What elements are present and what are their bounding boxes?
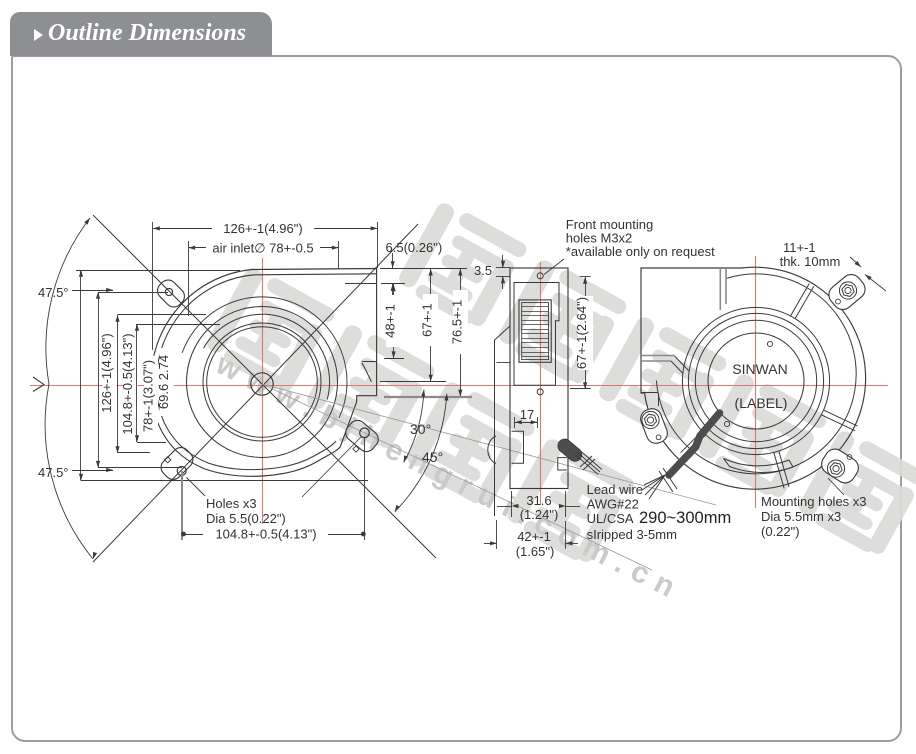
svg-text:(1.24"): (1.24")	[520, 507, 559, 522]
svg-text:AWG#22: AWG#22	[587, 497, 639, 512]
svg-text:Lead wire: Lead wire	[587, 482, 643, 497]
svg-text:104.8+-0.5(4.13"): 104.8+-0.5(4.13")	[120, 333, 135, 434]
svg-text:78+-1(3.07"): 78+-1(3.07")	[141, 360, 156, 432]
svg-text:Mounting holes x3: Mounting holes x3	[761, 494, 867, 509]
svg-text:UL/CSA: UL/CSA	[587, 511, 634, 526]
svg-text:(LABEL): (LABEL)	[735, 395, 788, 411]
svg-text:3.5: 3.5	[474, 263, 492, 278]
svg-text:(1.65"): (1.65")	[516, 544, 555, 559]
svg-text:126+-1(4.96"): 126+-1(4.96")	[99, 333, 114, 412]
svg-text:Holes x3: Holes x3	[206, 496, 257, 511]
svg-text:thk. 10mm: thk. 10mm	[780, 254, 841, 269]
svg-text:67+-1(2.64"): 67+-1(2.64")	[574, 297, 589, 369]
svg-text:(0.22"): (0.22")	[761, 524, 800, 539]
svg-text:11+-1: 11+-1	[783, 240, 816, 255]
svg-text:SINWAN: SINWAN	[732, 361, 787, 377]
svg-text:30°: 30°	[410, 421, 431, 437]
svg-text:17: 17	[520, 407, 534, 422]
svg-text:67+-1: 67+-1	[420, 303, 435, 337]
svg-text:48+-1: 48+-1	[383, 304, 398, 338]
svg-text:31.6: 31.6	[526, 493, 551, 508]
svg-text:69.6 2.74: 69.6 2.74	[156, 355, 171, 409]
svg-text:47.5°: 47.5°	[38, 465, 69, 480]
svg-text:45°: 45°	[422, 449, 443, 465]
svg-text:Dia 5.5mm x3: Dia 5.5mm x3	[761, 509, 841, 524]
svg-text:76.5+-1: 76.5+-1	[449, 300, 464, 344]
svg-text:104.8+-0.5(4.13"): 104.8+-0.5(4.13")	[215, 527, 316, 542]
svg-text:42+-1: 42+-1	[517, 529, 551, 544]
svg-text:47.5°: 47.5°	[38, 285, 69, 300]
svg-text:Dia 5.5(0.22"): Dia 5.5(0.22")	[206, 511, 286, 526]
svg-text:air inlet∅ 78+-0.5: air inlet∅ 78+-0.5	[212, 241, 313, 256]
svg-text:*available only on request: *available only on request	[566, 244, 715, 259]
svg-text:126+-1(4.96"): 126+-1(4.96")	[223, 221, 302, 236]
svg-text:sIripped 3-5mm: sIripped 3-5mm	[587, 527, 677, 542]
svg-text:6.5(0.26"): 6.5(0.26")	[386, 240, 443, 255]
svg-text:290~300mm: 290~300mm	[639, 509, 731, 527]
